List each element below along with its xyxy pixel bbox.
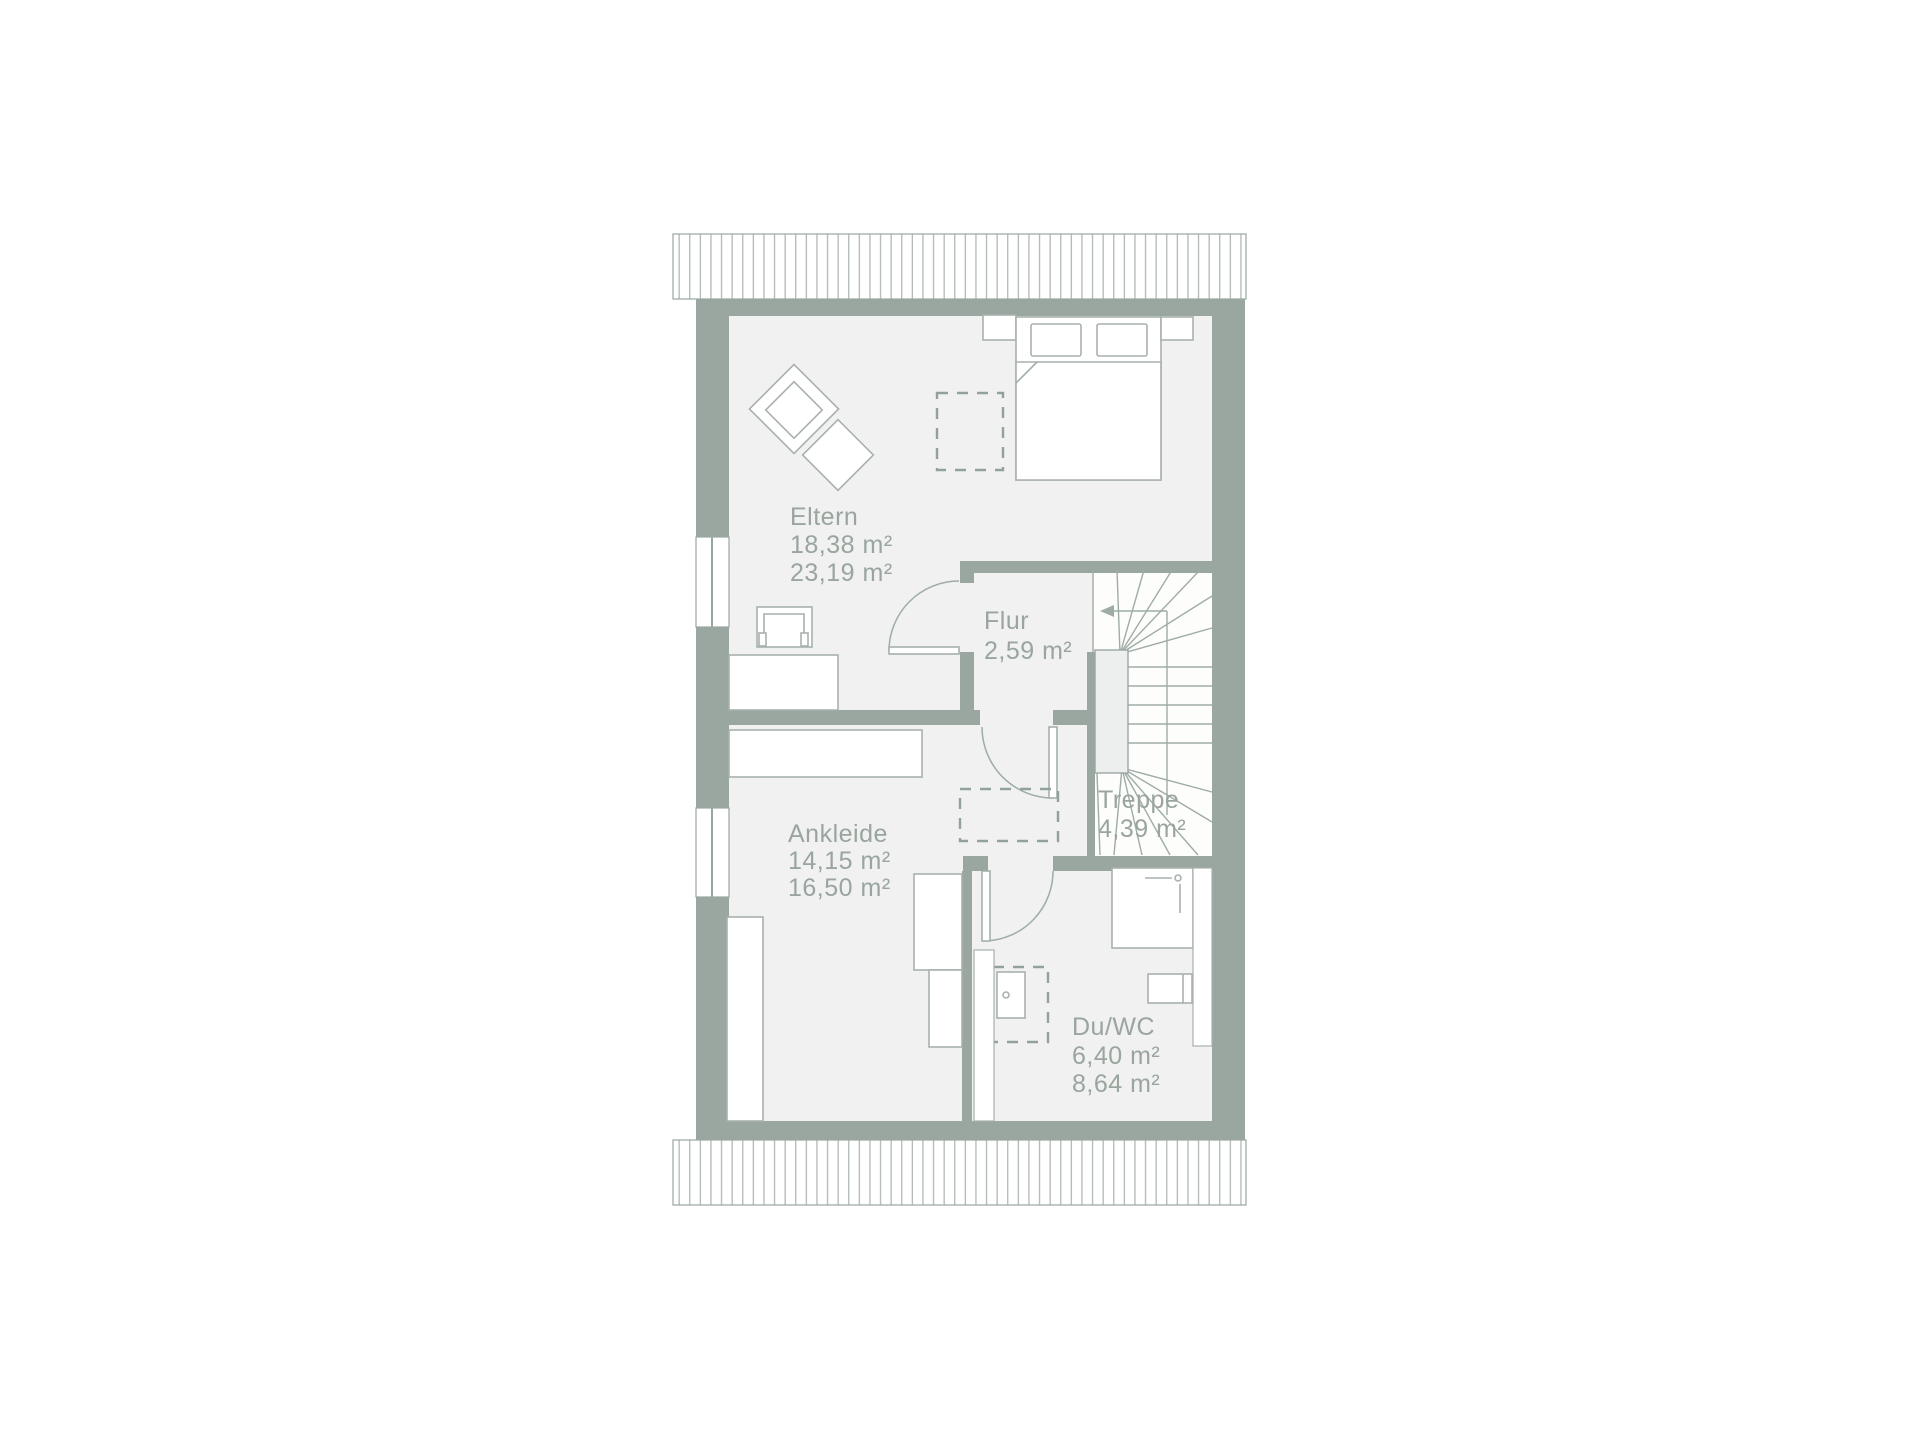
wall-bottom (696, 1121, 1245, 1140)
roof-hatch-top (673, 234, 1246, 299)
wall-ankleide-north (727, 710, 980, 725)
label-treppe-name: Treppe (1098, 786, 1179, 814)
label-ankleide-name: Ankleide (788, 820, 888, 848)
wall-duwc-north-stub (963, 856, 988, 871)
double-bed (1016, 317, 1161, 480)
stair-spine (1095, 650, 1128, 773)
pillow-left (1031, 324, 1081, 356)
pillow-right (1097, 324, 1147, 356)
label-eltern-area1: 18,38 m² (790, 531, 893, 559)
desk-chair (757, 607, 812, 647)
label-duwc-name: Du/WC (1072, 1013, 1155, 1041)
wall-ankleide-duwc (962, 871, 972, 1121)
shower (1112, 868, 1193, 948)
label-ankleide-area1: 14,15 m² (788, 847, 891, 875)
desk (729, 655, 838, 710)
label-duwc-area2: 8,64 m² (1072, 1070, 1160, 1098)
label-flur-area1: 2,59 m² (984, 637, 1072, 665)
label-ankleide-area2: 16,50 m² (788, 874, 891, 902)
label-flur-name: Flur (984, 607, 1029, 635)
wall-stub-flur-door (960, 573, 974, 583)
wall-left (696, 299, 729, 1140)
label-duwc-area1: 6,40 m² (1072, 1042, 1160, 1070)
floorplan-page: Eltern 18,38 m² 23,19 m² Flur 2,59 m² Tr… (0, 0, 1920, 1440)
bed-mattress (1016, 362, 1161, 480)
roof-hatch-bottom (673, 1140, 1246, 1205)
label-eltern-name: Eltern (790, 503, 858, 531)
installation-shaft (1193, 868, 1212, 1046)
wardrobe-right-lower (929, 970, 962, 1047)
wall-top (696, 299, 1245, 316)
wall-eltern-flur (960, 652, 974, 710)
washbasin (1148, 974, 1192, 1003)
wardrobe-right-upper (914, 874, 962, 970)
wall-eltern-south (960, 561, 1212, 573)
label-treppe-area1: 4,39 m² (1098, 815, 1186, 843)
floorplan-drawing: Eltern 18,38 m² 23,19 m² Flur 2,59 m² Tr… (0, 0, 1920, 1440)
label-eltern-area2: 23,19 m² (790, 559, 893, 587)
window-upper-left (696, 537, 729, 627)
nightstand-right (1161, 317, 1193, 340)
wall-stair-west (1087, 652, 1095, 856)
duwc-side-counter (974, 950, 994, 1121)
wardrobe-left (727, 917, 763, 1121)
window-lower-left (696, 808, 729, 897)
nightstand-left (983, 315, 1016, 340)
wc (997, 972, 1025, 1018)
wall-right (1212, 299, 1245, 1140)
wall-duwc-north (1053, 856, 1092, 871)
wardrobe-top (729, 730, 922, 777)
wall-flur-south (1053, 710, 1092, 725)
